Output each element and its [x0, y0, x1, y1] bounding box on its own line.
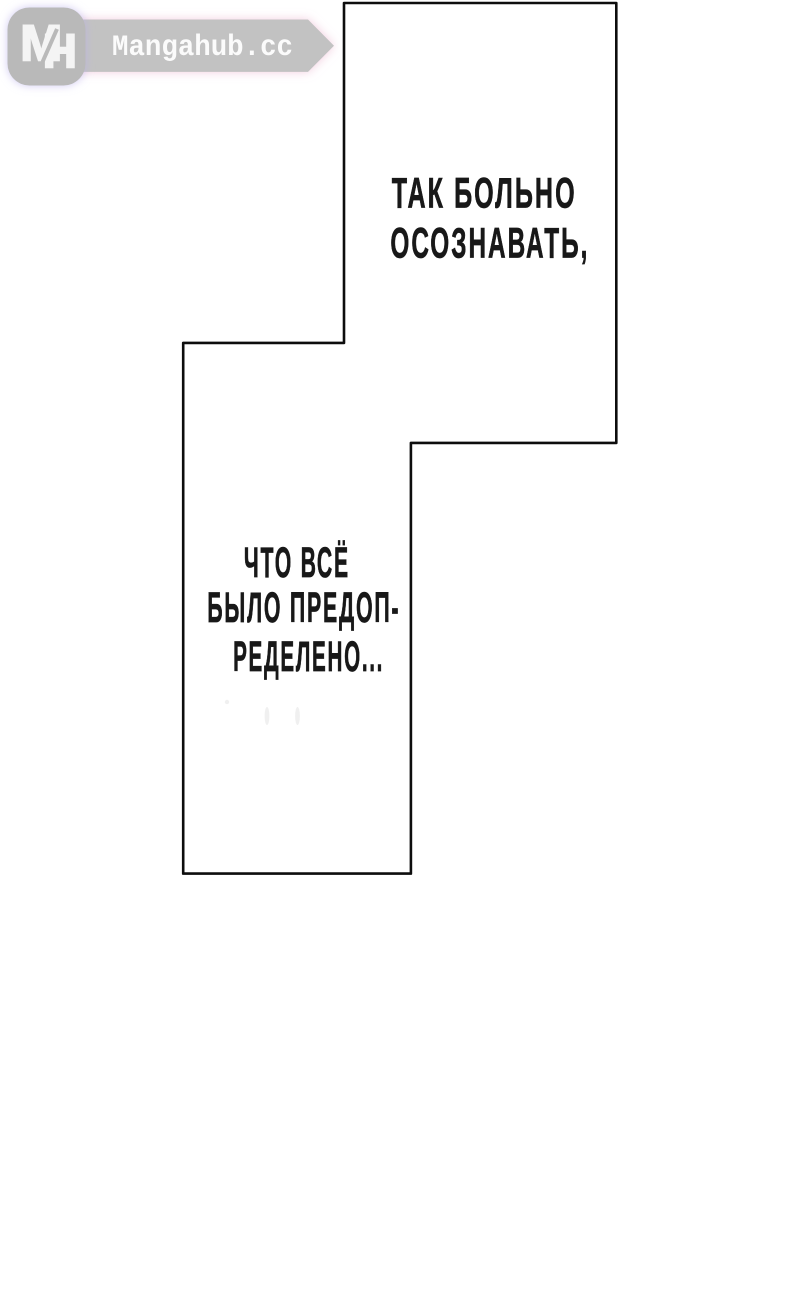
svg-text:Mangahub.cc: Mangahub.cc [112, 30, 293, 64]
svg-text:ОСОЗНАВАТЬ,: ОСОЗНАВАТЬ, [390, 219, 589, 267]
svg-text:ЧТО ВСЁ: ЧТО ВСЁ [244, 539, 350, 587]
svg-text:БЫЛО ПРЕДОП-: БЫЛО ПРЕДОП- [207, 584, 400, 632]
svg-text:РЕДЕЛЕНО...: РЕДЕЛЕНО... [233, 633, 384, 681]
svg-text:ТАК БОЛЬНО: ТАК БОЛЬНО [392, 170, 577, 218]
